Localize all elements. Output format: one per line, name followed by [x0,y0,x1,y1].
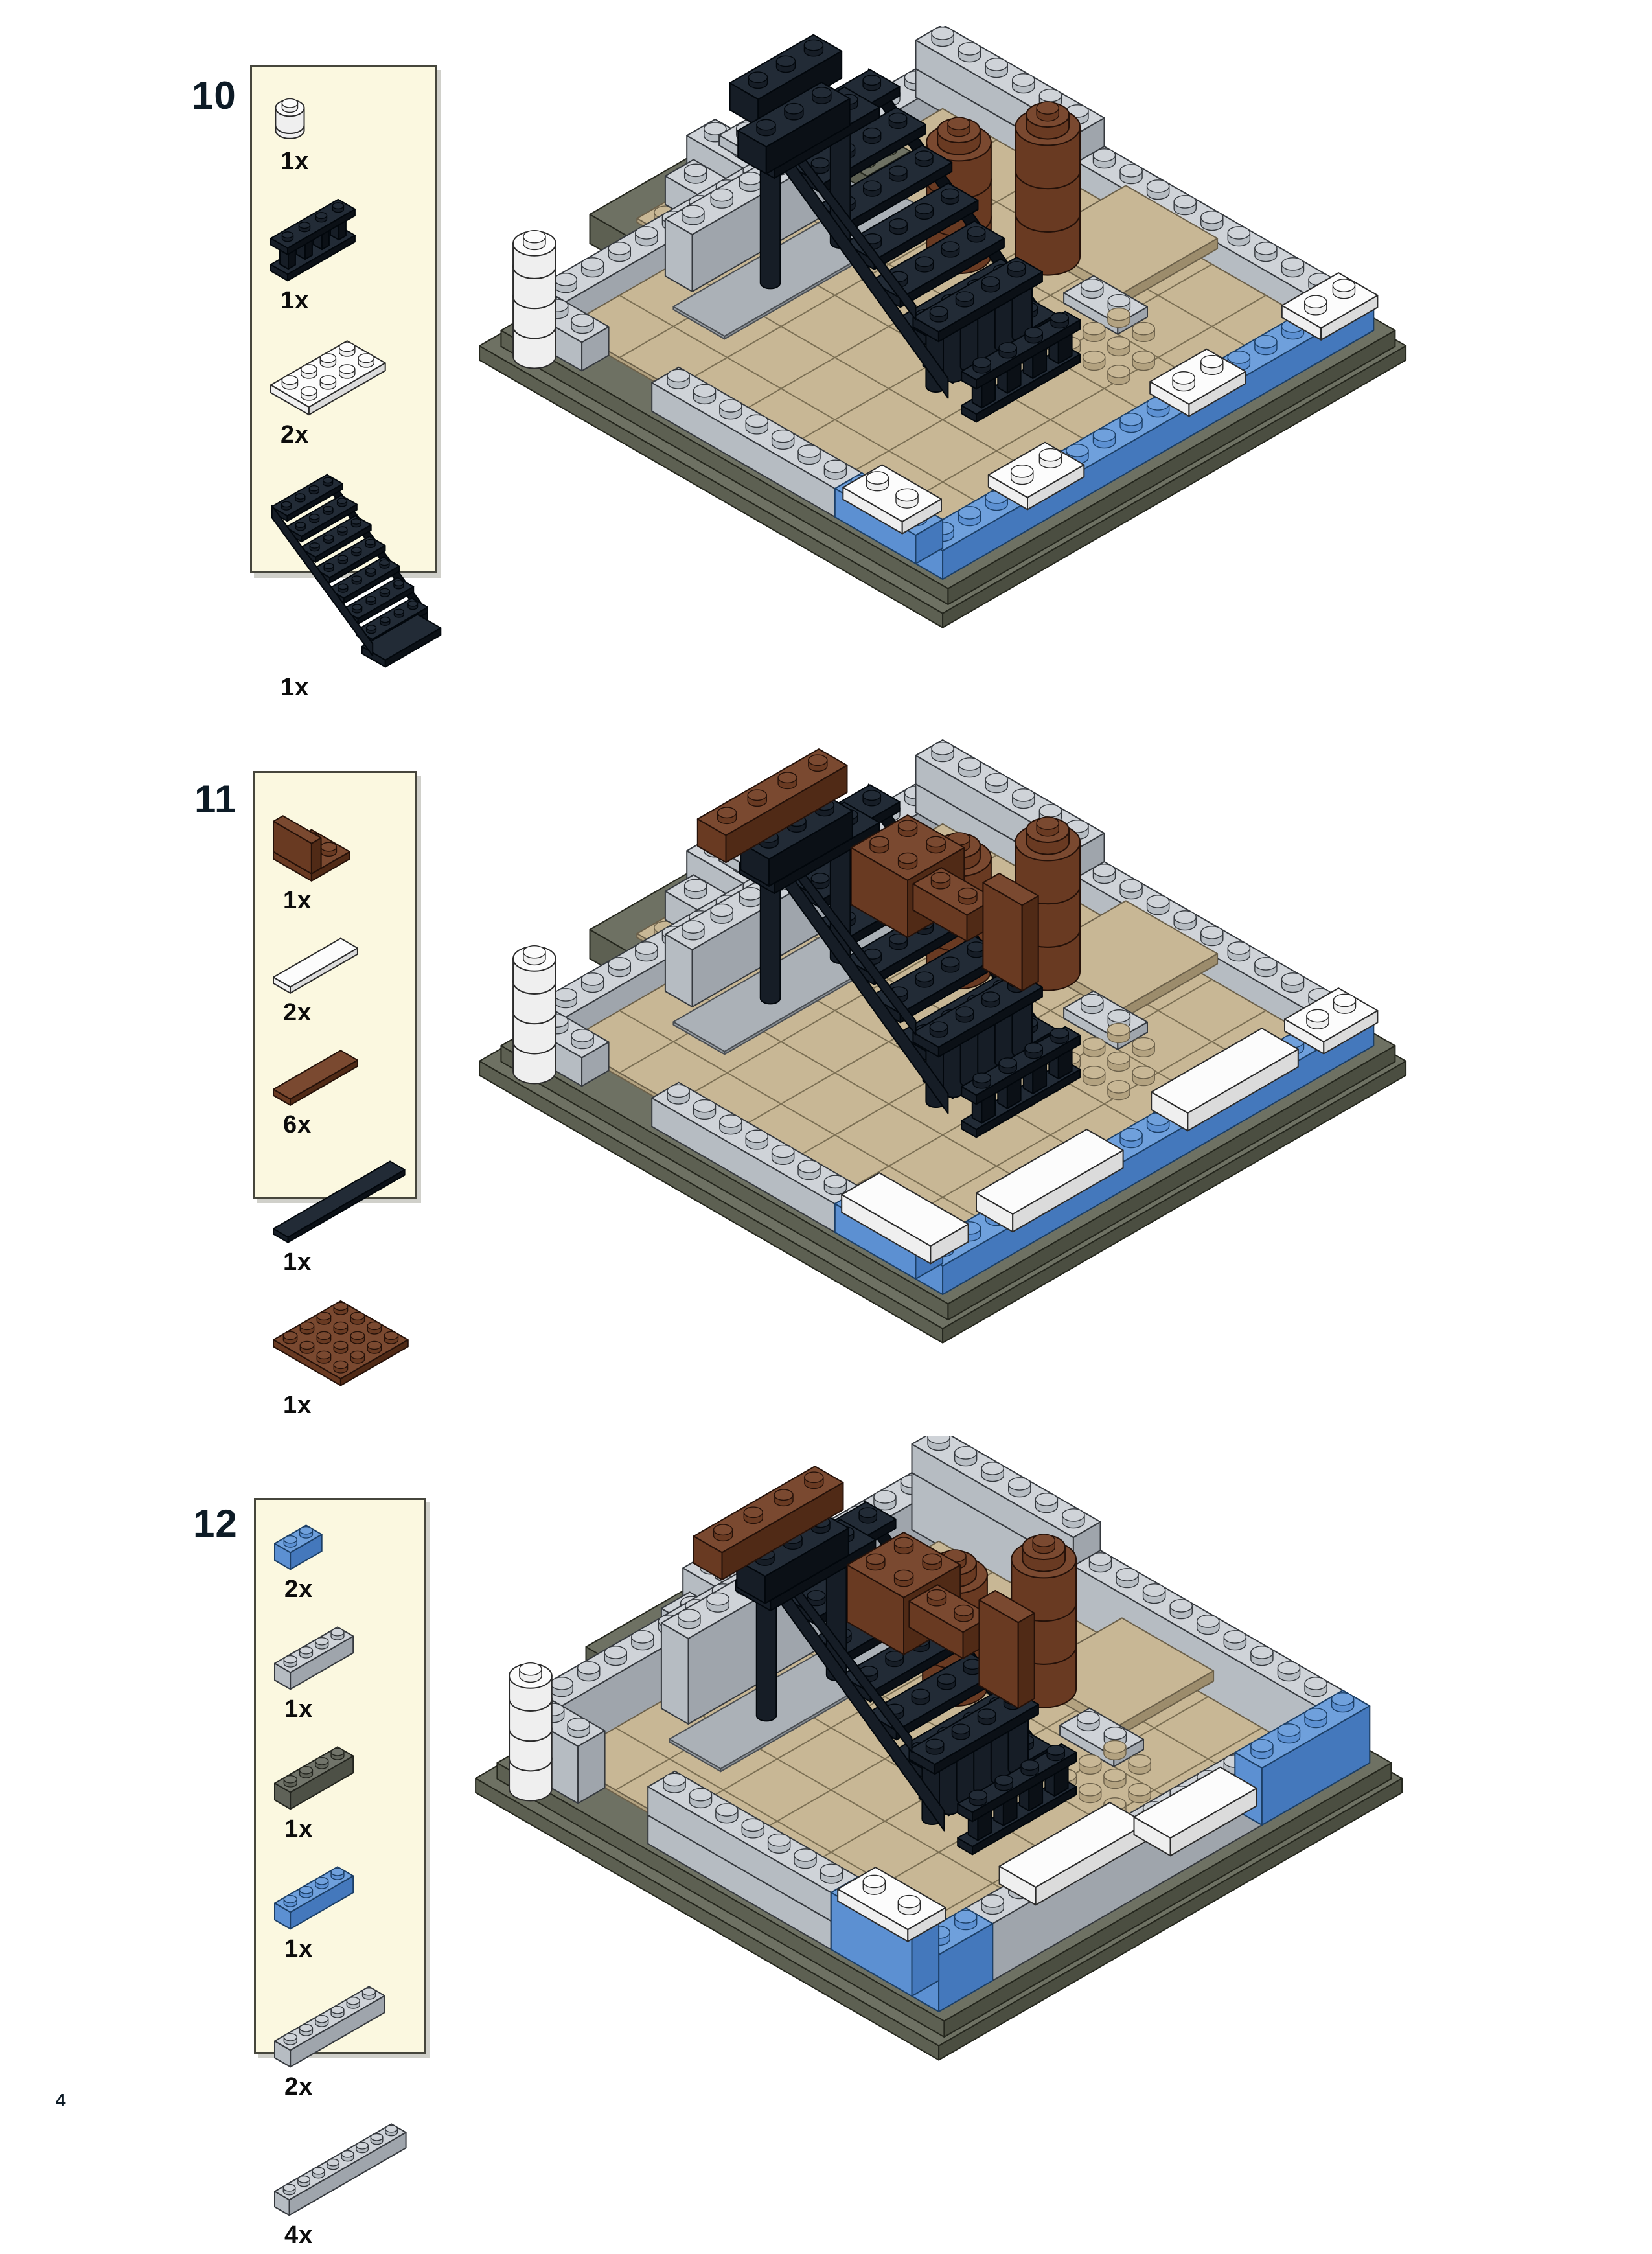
part-item: 1x [261,184,361,319]
step-11-number: 11 [194,780,236,819]
piece-tile-1x4-white-icon [268,923,363,999]
part-quantity: 1x [281,288,309,313]
part-item: 2x [264,923,363,1031]
part-quantity: 1x [283,888,312,913]
part-quantity: 1x [281,149,309,174]
part-item: 1x [265,1852,360,1968]
piece-brick-1x6-gray-icon [269,1972,391,2073]
piece-tile-1x8-black-icon [268,1147,411,1248]
step-12-number: 12 [193,1504,238,1543]
part-item: 1x [264,1285,414,1424]
part-item: 6x [264,1035,363,1144]
part-quantity: 1x [284,1697,313,1721]
piece-plate-4x4-brown-icon [268,1285,414,1392]
part-item: 2x [265,1510,328,1608]
part-item: 4x [265,2110,412,2254]
part-quantity: 4x [284,2223,313,2248]
part-quantity: 1x [281,675,309,700]
part-item: 1x [265,1612,360,1728]
piece-brick-1x4-blue-icon [269,1852,360,1935]
piece-fence-1x4-black-icon [265,184,361,287]
piece-panel-2x2-brown-icon [268,783,356,887]
part-quantity: 2x [281,422,309,447]
piece-tile-1x4-brown-icon [268,1035,363,1111]
part-quantity: 6x [283,1112,312,1137]
part-item: 2x [261,323,391,454]
model-render-step-12 [399,1436,1462,2097]
piece-plate-2x4-white-icon [265,323,391,421]
part-item: 1x [265,1732,360,1848]
part-quantity: 1x [283,1393,312,1418]
model-render-step-10 [415,26,1451,635]
part-quantity: 2x [284,1577,313,1602]
part-quantity: 1x [283,1250,312,1274]
piece-brick-1x4-gray-icon [269,1612,360,1696]
model-render-step-11 [415,731,1451,1366]
page-number: 4 [56,2090,66,2111]
part-item: 1x [264,783,356,919]
piece-brick-1x2-blue-icon [269,1510,328,1576]
piece-brick-1x4-darkgray-icon [269,1732,360,1815]
part-item: 1x [261,78,315,180]
part-item: 2x [265,1972,391,2106]
instruction-page: { "page": { "number": "4", "background":… [0,0,1652,2138]
part-quantity: 2x [283,1000,312,1025]
part-quantity: 1x [284,1817,313,1841]
piece-round-1x1-white-icon [265,78,315,148]
part-quantity: 2x [284,2075,313,2099]
part-quantity: 1x [284,1937,313,1961]
step-10-number: 10 [192,76,236,115]
part-item: 1x [264,1147,411,1281]
step-11-parts-box: 1x2x6x1x1x [253,771,417,1199]
piece-brick-1x8-gray-icon [269,2110,412,2222]
step-10-parts-box: 1x1x2x1x [250,65,437,573]
